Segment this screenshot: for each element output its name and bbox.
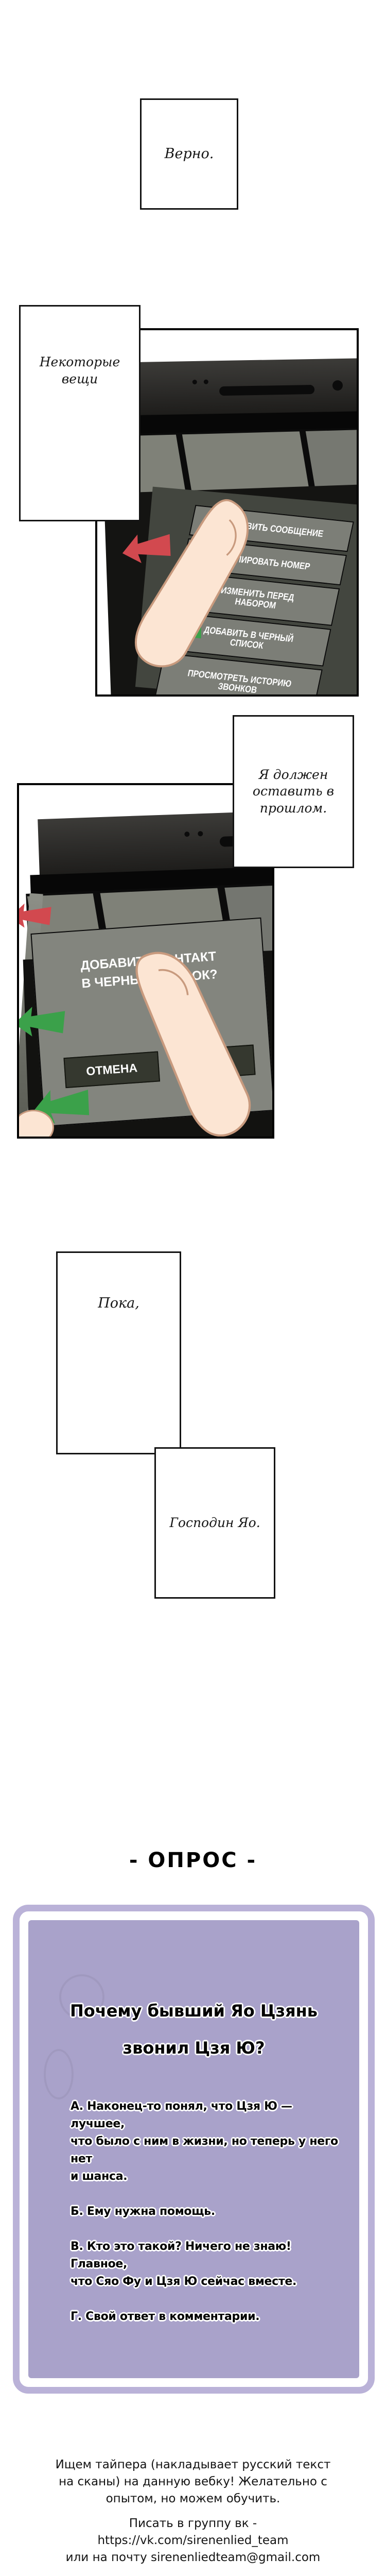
proximity-dot-icon [332,380,343,391]
poll-option-line: А. Наконец-то понял, что Цзя Ю — лучшее, [71,2098,339,2133]
contact-note: Писать в группу вк - https://vk.com/sire… [0,2515,386,2566]
poll-question: Почему бывший Яо Цзянь звонил Цзя Ю? [28,1992,359,2066]
speaker-slot-icon [219,385,314,396]
speech-text: Пока, [98,1294,139,1312]
poll-option-line: что Сяо Фу и Цзя Ю сейчас вместе. [71,2273,339,2308]
webtoon-page: Верно. ОТПРАВИТЬ СООБЩЕНИЕ СКОПИРОВАТЬ Н… [0,0,386,2576]
speech-box-verno: Верно. [140,98,238,210]
speech-box-proshloe: Я должен оставить в прошлом. [233,715,354,868]
camera-dot-icon [204,380,208,384]
speech-box-poka: Пока, [56,1251,181,1454]
speech-text: Верно. [165,145,214,163]
poll-option-line: Г. Свой ответ в комментарии. [71,2308,339,2343]
camera-dot-icon [184,832,189,837]
green-arrow-icon [17,1004,69,1041]
phone-top [139,358,359,416]
speech-text: Некоторые вещи [40,354,120,387]
recruit-note: Ищем тайпера (накладывает русский текст … [0,2456,386,2507]
key-tile[interactable] [182,431,309,491]
speech-text: Я должен оставить в прошлом. [253,767,334,817]
poll-option-line: и шанса. [71,2168,339,2203]
poll-box: Почему бывший Яо Цзянь звонил Цзя Ю? А. … [13,1905,375,2394]
poll-heading: - ОПРОС - [0,1849,386,1872]
poll-option-line: В. Кто это такой? Ничего не знаю! Главно… [71,2238,339,2273]
poll-option-line: Б. Ему нужна помощь. [71,2203,339,2238]
speech-text: Господин Яо. [169,1515,260,1532]
camera-dot-icon [198,831,203,836]
speech-box-nekotorye: Некоторые вещи [19,305,141,521]
speech-box-gospodin: Господин Яо. [154,1447,275,1599]
poll-box-fill: Почему бывший Яо Цзянь звонил Цзя Ю? А. … [28,1920,359,2378]
phone-keypad [129,428,359,495]
key-tile[interactable] [306,430,359,487]
poll-option-line: что было с ним в жизни, но теперь у него… [71,2133,339,2168]
vk-link: https://vk.com/sirenenlied_team [0,2532,386,2549]
camera-dot-icon [192,380,197,384]
red-arrow-icon [17,901,53,931]
poll-options: А. Наконец-то понял, что Цзя Ю — лучшее,… [71,2098,339,2343]
